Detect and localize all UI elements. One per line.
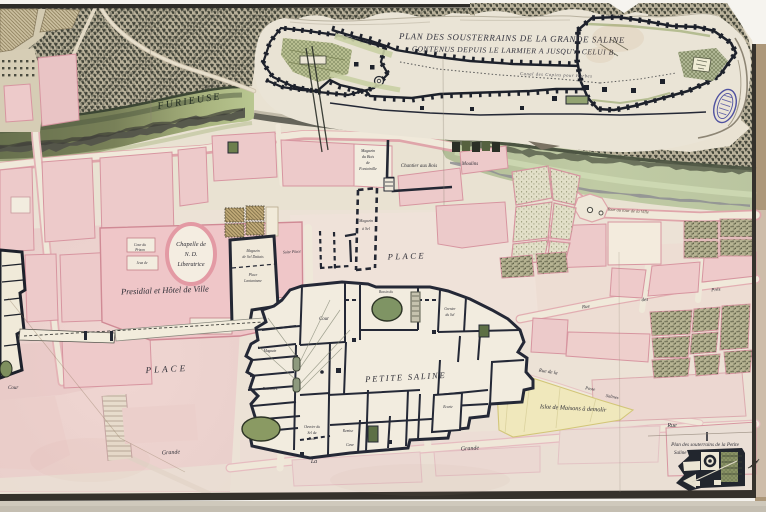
svg-text:Cour du: Cour du — [134, 243, 146, 247]
svg-text:PLACE: PLACE — [386, 250, 426, 261]
svg-text:Chantier aux Bois: Chantier aux Bois — [401, 164, 437, 169]
svg-text:Grande: Grande — [162, 450, 181, 457]
svg-text:Liberatrice: Liberatrice — [177, 262, 205, 268]
svg-text:Prison: Prison — [134, 248, 145, 252]
svg-text:Bassin du: Bassin du — [379, 290, 393, 294]
svg-text:Cave: Cave — [346, 443, 354, 447]
svg-text:Plan des souterrains de la Pet: Plan des souterrains de la Petite — [670, 442, 740, 448]
svg-text:des: des — [641, 298, 648, 304]
svg-text:Cour: Cour — [8, 386, 18, 391]
svg-text:Cour: Cour — [319, 317, 329, 322]
svg-text:Remise: Remise — [342, 429, 354, 433]
svg-text:Grande: Grande — [461, 446, 480, 453]
svg-text:de: de — [366, 160, 370, 165]
svg-text:Magazin: Magazin — [360, 148, 375, 153]
svg-text:Moulins: Moulins — [461, 162, 478, 167]
svg-text:Magazin: Magazin — [358, 218, 373, 223]
svg-text:du Bois: du Bois — [362, 154, 375, 159]
svg-text:à Sel: à Sel — [362, 226, 371, 231]
svg-text:Grenier: Grenier — [444, 307, 456, 311]
svg-text:Jeux de: Jeux de — [137, 261, 148, 265]
svg-text:Ecurie: Ecurie — [442, 405, 453, 409]
svg-text:La: La — [310, 459, 317, 465]
svg-text:Rue: Rue — [666, 423, 677, 429]
svg-text:Pain: Pain — [308, 437, 316, 441]
svg-text:Chapelle de: Chapelle de — [176, 241, 206, 248]
svg-text:Lantanisme: Lantanisme — [243, 279, 262, 283]
svg-text:de Sel Dattais: de Sel Dattais — [242, 255, 264, 259]
svg-text:Sel du: Sel du — [308, 431, 317, 435]
svg-text:Rue: Rue — [581, 305, 591, 311]
svg-text:du Sel: du Sel — [446, 313, 455, 317]
svg-text:Suite Place: Suite Place — [283, 249, 302, 255]
svg-text:Place: Place — [248, 273, 258, 277]
svg-text:Ouvrier du: Ouvrier du — [304, 425, 320, 429]
svg-text:N. D.: N. D. — [184, 252, 198, 258]
svg-text:Saline: Saline — [674, 451, 687, 456]
svg-text:Fontainille: Fontainille — [358, 166, 377, 171]
svg-text:Magazin: Magazin — [245, 249, 259, 253]
svg-text:Prés: Prés — [710, 288, 721, 294]
svg-text:Estanelles: Estanelles — [262, 387, 278, 391]
svg-text:Magazin: Magazin — [263, 349, 277, 353]
